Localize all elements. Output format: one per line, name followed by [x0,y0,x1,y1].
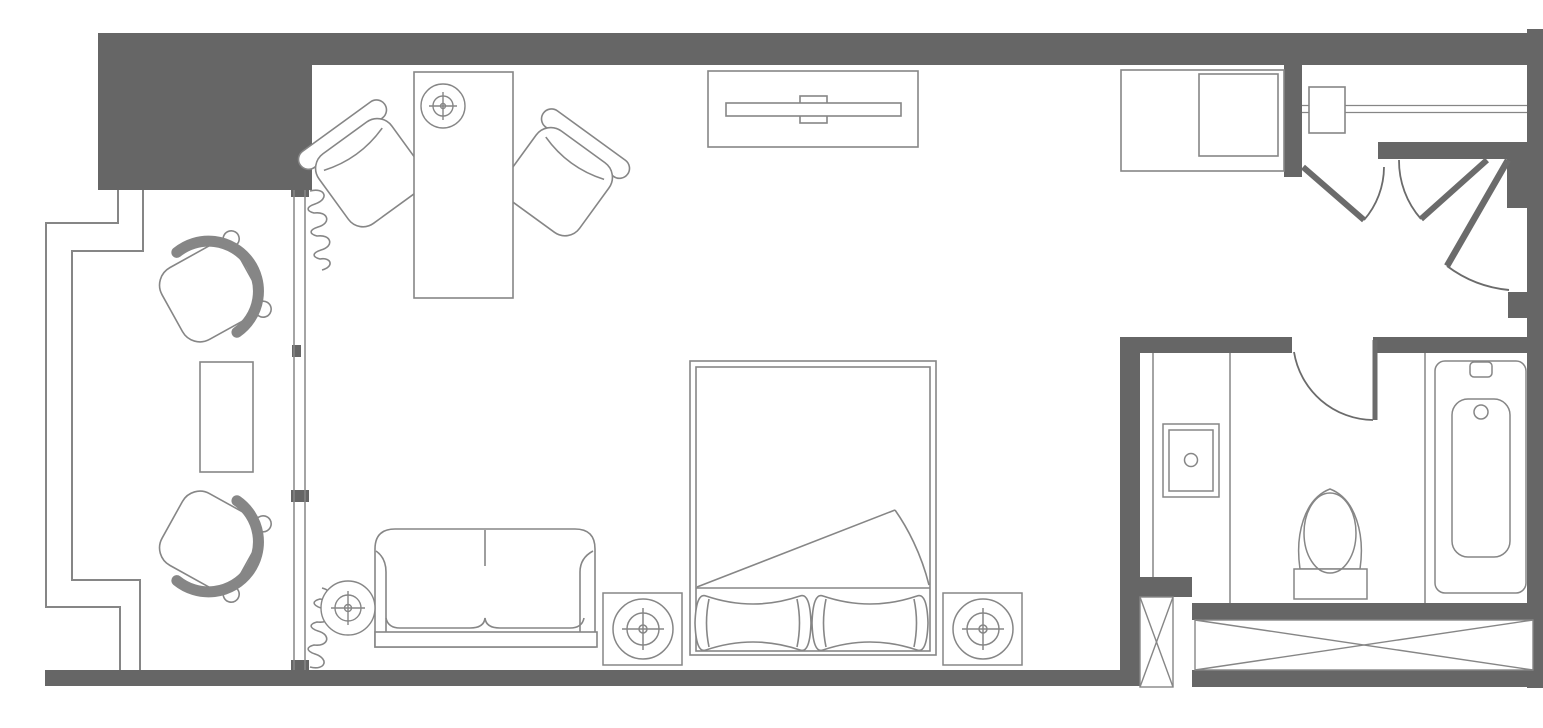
desk-lamp [421,84,465,128]
vanity-sink [1163,424,1219,497]
tv-screen [726,103,901,116]
sofa [375,529,597,647]
wall-closet-bottom [1378,142,1527,159]
wall-bathroom-divider [1120,337,1140,686]
wall-bottom-right [1192,670,1543,687]
tub-faucet [1470,362,1492,377]
tv-console [708,71,918,147]
wall-right [1527,29,1543,688]
wall-closet-left [1284,65,1302,177]
sink-inner [1169,430,1213,491]
bed [690,361,936,655]
nightstand-left [603,593,682,665]
wall-top-band [312,33,1527,65]
minibar-inner [1199,74,1278,156]
minibar-cabinet [1121,70,1284,171]
wall-entry-jamb-top [1507,159,1527,208]
bed-pillow-right [812,596,928,651]
floor-plan [0,0,1543,728]
balcony-table [200,362,253,472]
floor-plan-canvas [0,0,1543,728]
wall-bottom-main [45,670,1140,686]
wall-bathroom-top-right [1373,337,1527,353]
duct-shaft [1140,597,1173,687]
bathtub [1435,361,1526,593]
wall-bathroom-bottom [1192,603,1543,620]
bed-pillow-left [695,596,811,651]
nightstand-right [943,593,1022,665]
sofa-base [375,632,597,647]
floor-lamp [321,581,375,635]
wall-bathroom-top-left [1120,337,1292,353]
tub-basin [1452,399,1510,557]
wall-top-left-block [98,33,312,190]
luggage-shelf [1309,87,1345,133]
wall-entry-jamb-bottom [1508,292,1527,318]
linen-shelf [1195,620,1533,670]
wall-vanity-stub [1140,577,1192,597]
